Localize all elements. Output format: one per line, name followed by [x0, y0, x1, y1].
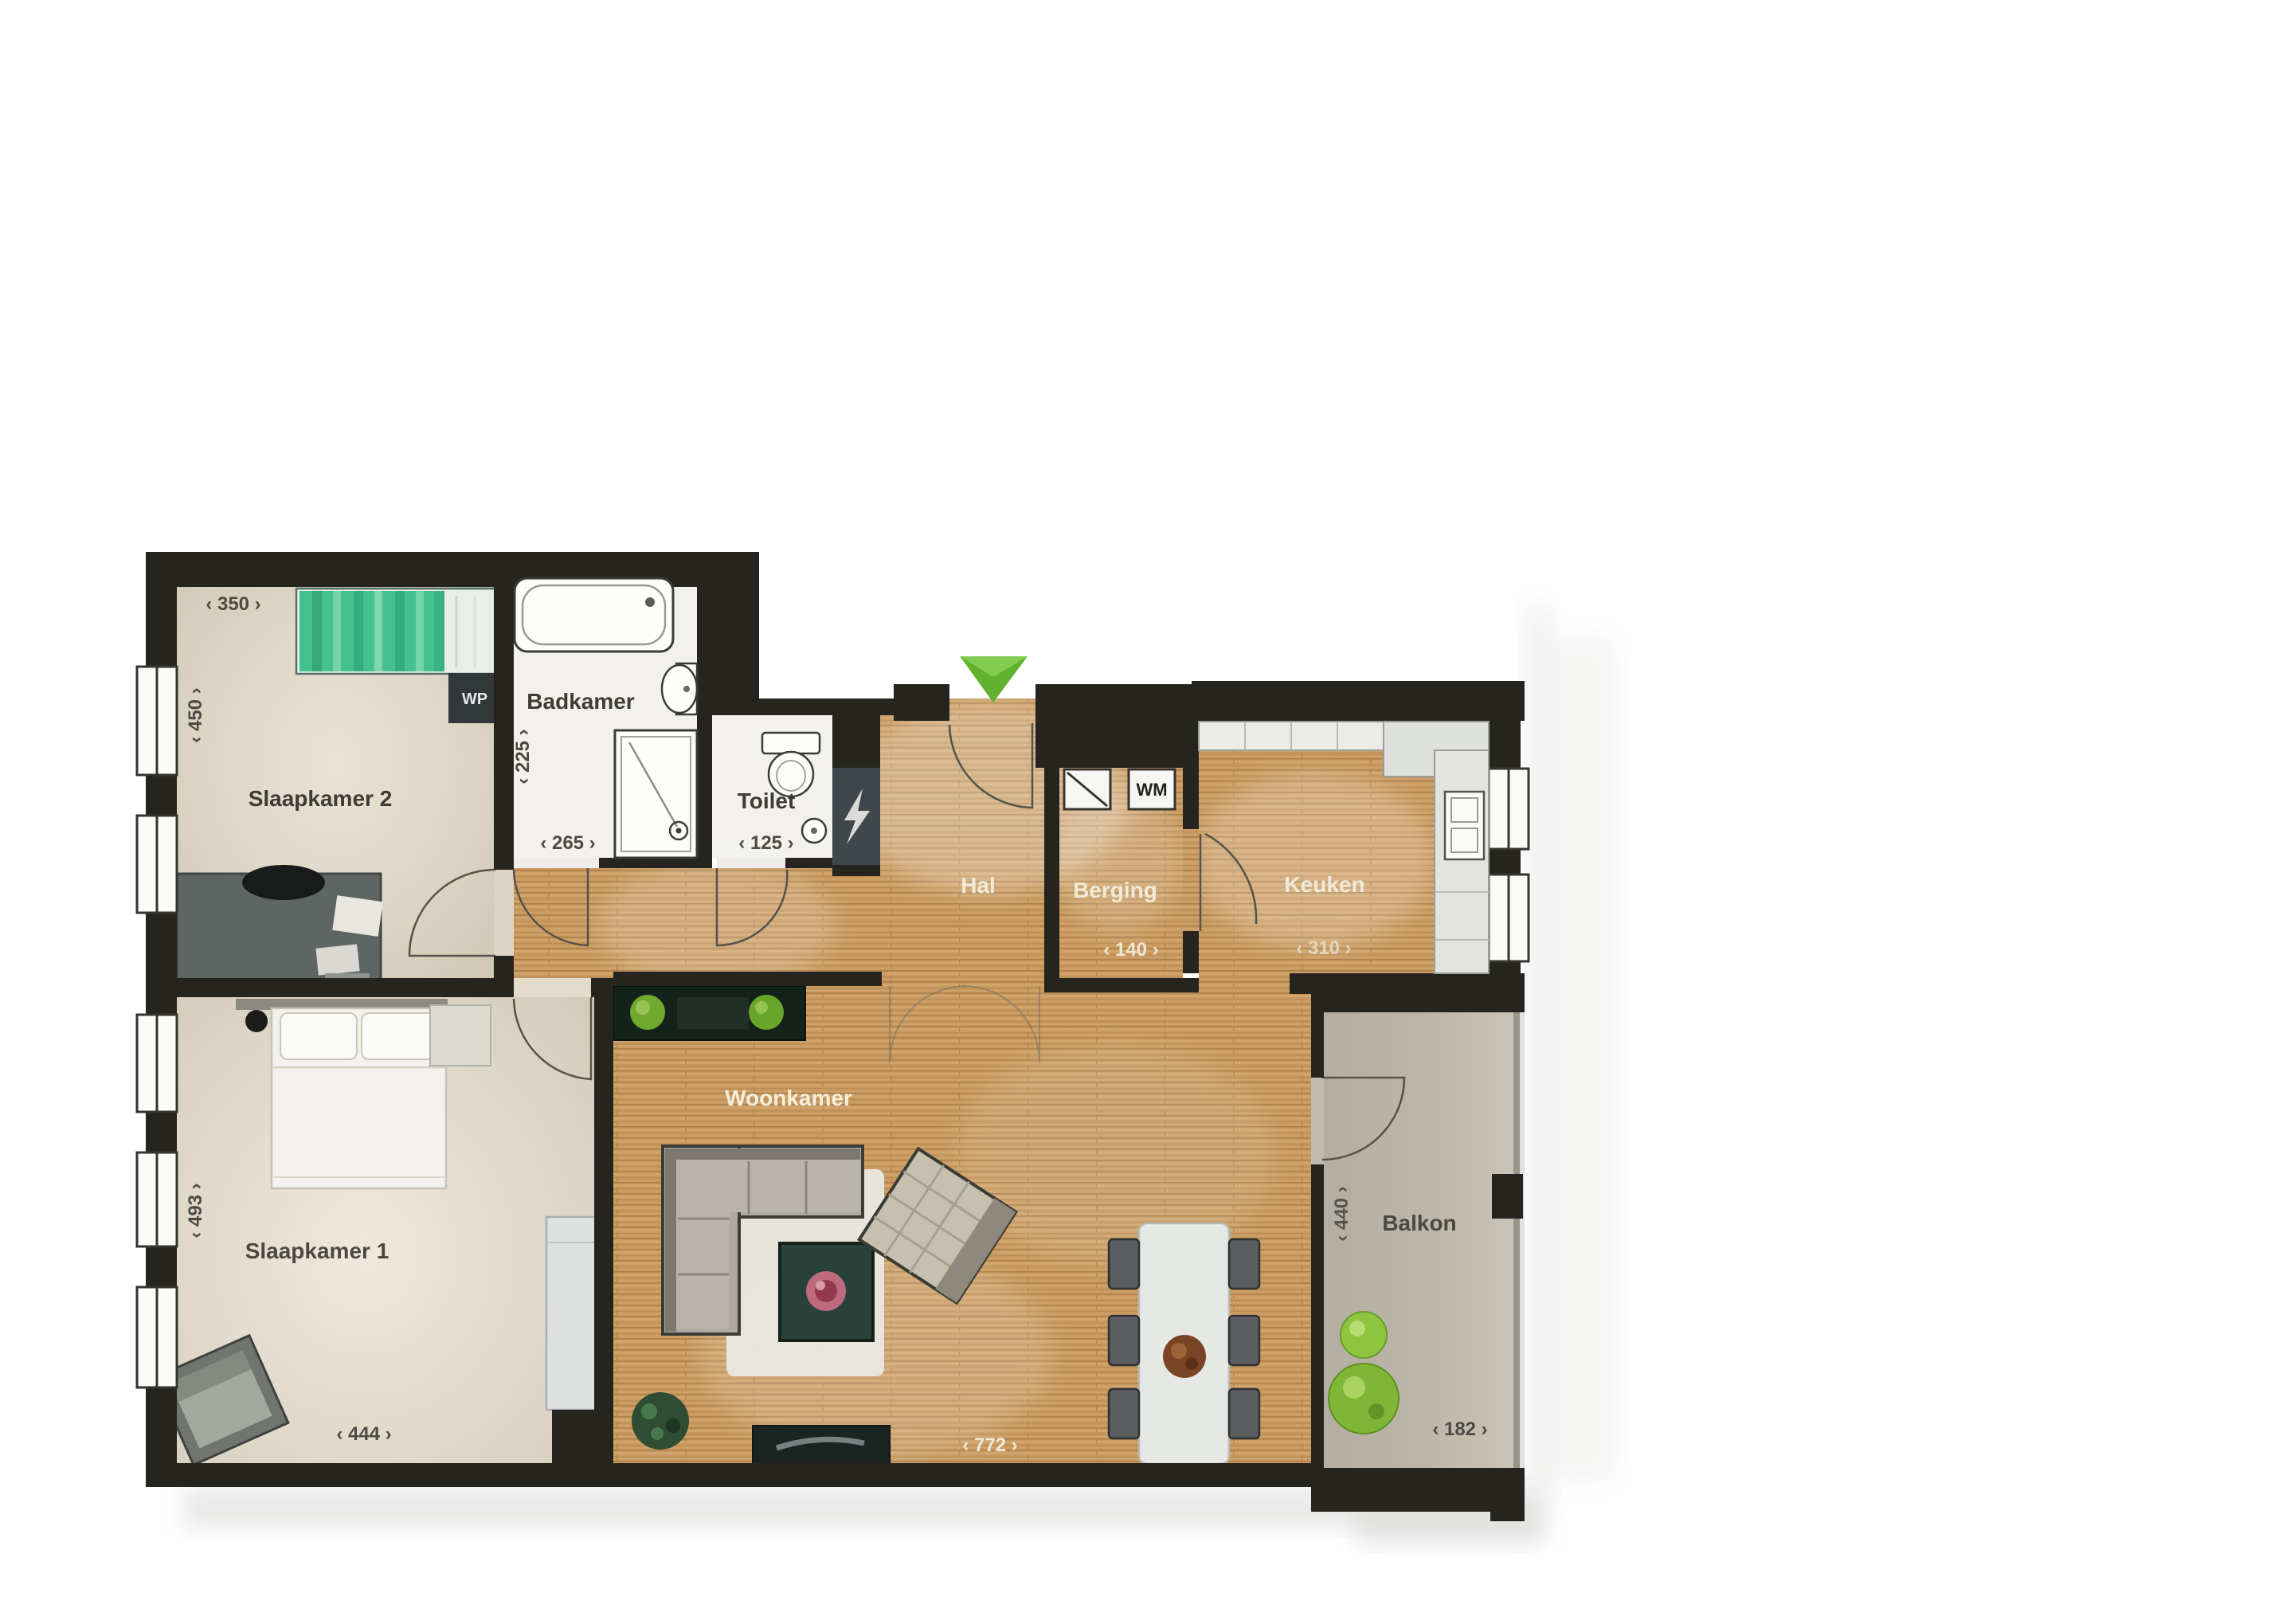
svg-text:Hal: Hal	[961, 873, 996, 898]
svg-text:‹ 125 ›: ‹ 125 ›	[738, 832, 793, 854]
svg-text:Badkamer: Badkamer	[527, 689, 635, 714]
svg-text:‹ 310 ›: ‹ 310 ›	[1296, 937, 1351, 959]
svg-text:‹ 772 ›: ‹ 772 ›	[962, 1434, 1017, 1456]
svg-text:Slaapkamer 1: Slaapkamer 1	[245, 1239, 390, 1263]
svg-text:WM: WM	[1136, 780, 1167, 800]
svg-text:Toilet: Toilet	[738, 789, 796, 813]
svg-text:WP: WP	[462, 691, 487, 708]
svg-text:Woonkamer: Woonkamer	[725, 1086, 852, 1110]
svg-text:‹ 493 ›: ‹ 493 ›	[185, 1183, 206, 1238]
svg-text:Balkon: Balkon	[1382, 1211, 1456, 1235]
svg-text:Berging: Berging	[1073, 878, 1157, 902]
svg-text:‹ 265 ›: ‹ 265 ›	[540, 832, 595, 854]
svg-text:‹ 350 ›: ‹ 350 ›	[206, 593, 260, 615]
svg-text:Keuken: Keuken	[1284, 872, 1364, 897]
svg-text:‹ 225 ›: ‹ 225 ›	[512, 729, 534, 784]
svg-text:‹ 140 ›: ‹ 140 ›	[1103, 939, 1158, 961]
svg-text:‹ 182 ›: ‹ 182 ›	[1432, 1419, 1487, 1440]
svg-text:‹ 450 ›: ‹ 450 ›	[185, 687, 206, 742]
svg-text:‹ 440 ›: ‹ 440 ›	[1331, 1186, 1353, 1241]
svg-text:‹ 444 ›: ‹ 444 ›	[336, 1423, 391, 1445]
svg-text:Slaapkamer 2: Slaapkamer 2	[249, 786, 393, 811]
